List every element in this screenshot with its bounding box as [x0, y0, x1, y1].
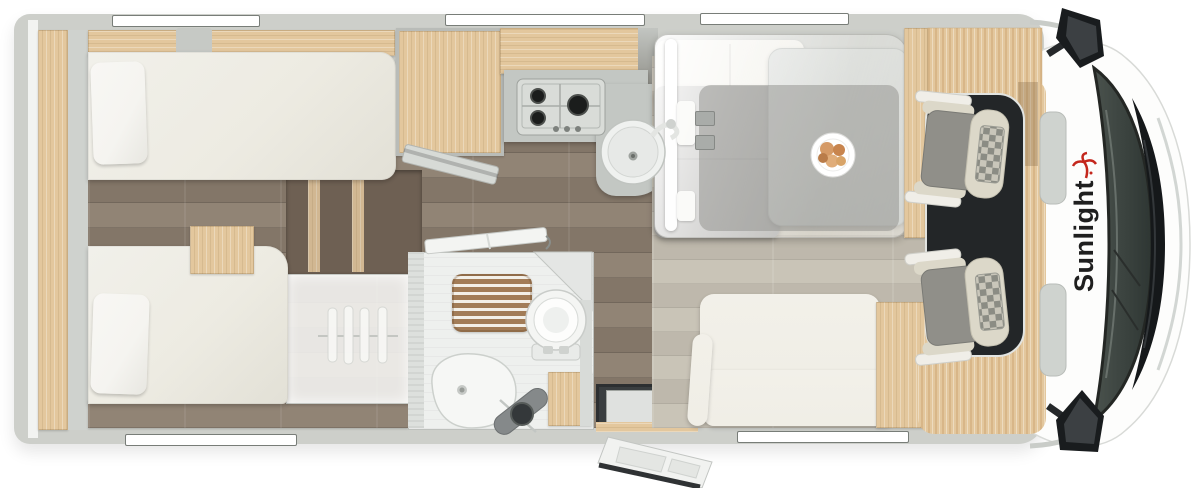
hob-knob: [564, 126, 570, 132]
brand-logo-text: Sunlight: [1069, 180, 1099, 292]
hob-knob: [553, 126, 559, 132]
wardrobe-open-door: [402, 144, 500, 185]
cab-wood-bottom: [918, 352, 1046, 434]
plate-with-food: [811, 133, 855, 177]
burner-icon: [568, 95, 588, 115]
dashboard-cap-bottom: [1040, 284, 1066, 376]
burner-icon: [531, 89, 545, 103]
kitchen-sink: [601, 119, 677, 184]
toilet: [526, 290, 586, 360]
motorhome-floorplan: Sunlight: [0, 0, 1200, 488]
hob-knob: [575, 126, 581, 132]
dashboard-cap-top: [1040, 112, 1066, 204]
stove-hob: [517, 79, 605, 135]
burner-icon: [531, 111, 545, 125]
cab-and-front: Sunlight: [900, 0, 1200, 488]
clothes-hangers: [318, 306, 398, 364]
entry-door-open: [598, 437, 712, 488]
bathroom-folding-door: [425, 227, 550, 254]
headrest-checker: [975, 125, 1005, 183]
headrest-checker: [975, 273, 1005, 331]
